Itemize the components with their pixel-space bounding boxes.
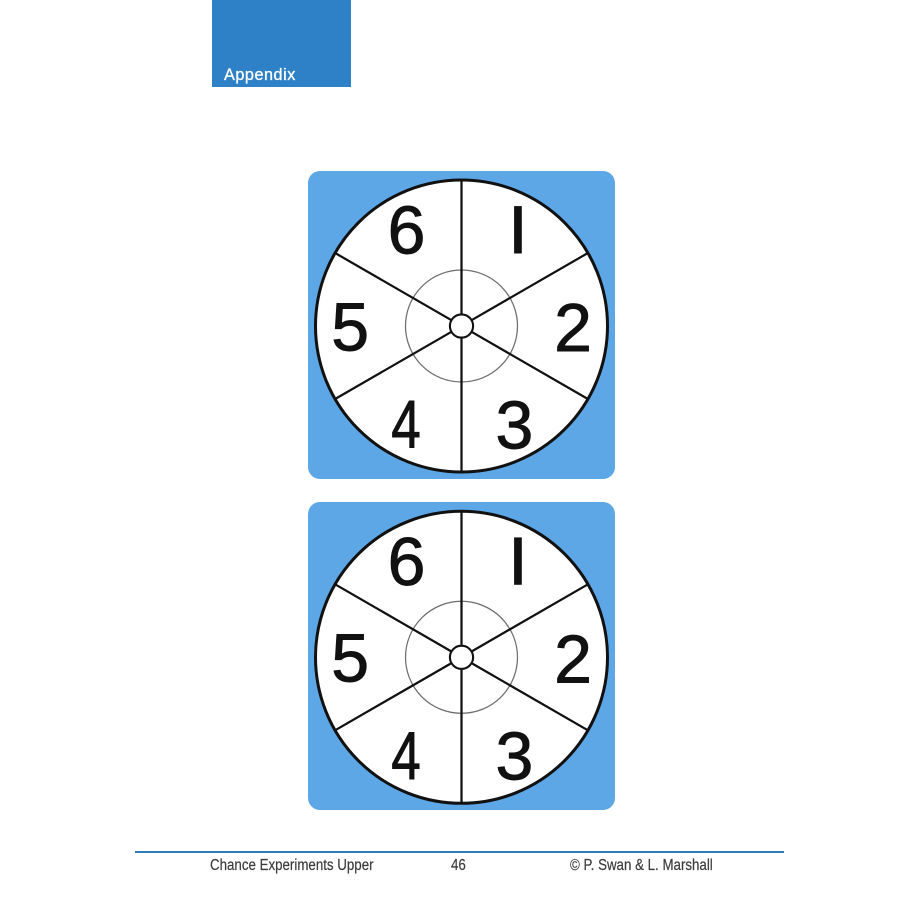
svg-text:5: 5 [331,289,369,365]
svg-text:4: 4 [391,386,421,462]
svg-text:6: 6 [388,524,426,600]
svg-text:2: 2 [554,621,592,697]
svg-text:2: 2 [554,290,592,366]
svg-text:3: 3 [495,719,533,795]
svg-text:5: 5 [331,621,369,697]
svg-text:6: 6 [388,193,426,269]
svg-text:4: 4 [391,717,421,793]
svg-text:3: 3 [495,387,533,463]
